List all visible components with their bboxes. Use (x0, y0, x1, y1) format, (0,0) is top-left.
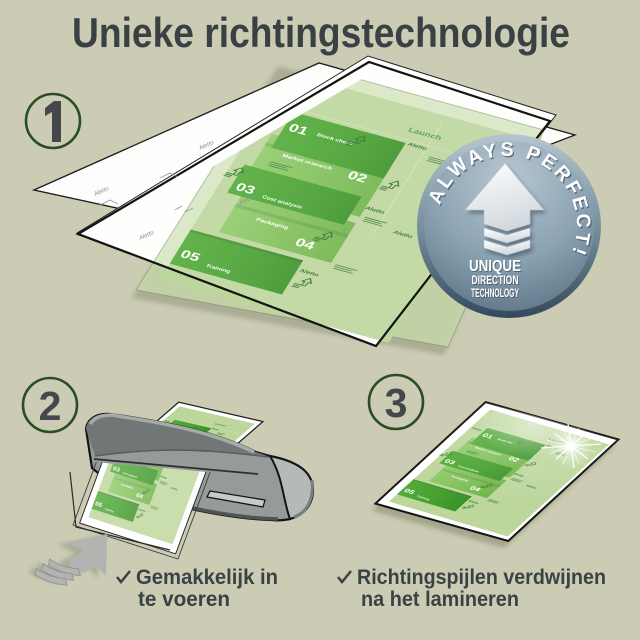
svg-text:3: 3 (385, 380, 408, 426)
svg-text:Unieke richtingstechnologie: Unieke richtingstechnologie (72, 9, 570, 56)
svg-text:te voeren: te voeren (138, 588, 230, 611)
svg-text:Richtingspijlen verdwijnen: Richtingspijlen verdwijnen (357, 566, 606, 589)
svg-text:Gemakkelijk in: Gemakkelijk in (136, 566, 278, 589)
svg-text:na het lamineren: na het lamineren (361, 588, 519, 611)
svg-text:TECHNOLOGY: TECHNOLOGY (471, 288, 519, 300)
svg-text:DIRECTION: DIRECTION (472, 273, 519, 287)
svg-text:2: 2 (39, 383, 62, 429)
